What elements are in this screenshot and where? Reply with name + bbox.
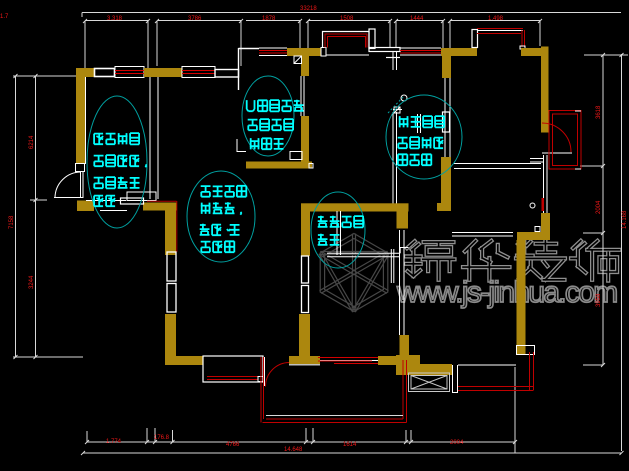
svg-text:3786: 3786 bbox=[188, 16, 202, 22]
svg-text:33218: 33218 bbox=[300, 6, 317, 12]
svg-text:1614: 1614 bbox=[343, 442, 357, 448]
svg-text:3244: 3244 bbox=[29, 275, 35, 289]
svg-text:7158: 7158 bbox=[9, 215, 15, 229]
svg-text:3.318: 3.318 bbox=[107, 16, 123, 22]
svg-text:6214: 6214 bbox=[29, 135, 35, 149]
svg-text:176.8: 176.8 bbox=[154, 435, 170, 441]
svg-text:1444: 1444 bbox=[410, 16, 424, 22]
svg-text:1.774: 1.774 bbox=[106, 439, 122, 445]
svg-text:4766: 4766 bbox=[226, 442, 240, 448]
svg-text:2004: 2004 bbox=[596, 200, 602, 214]
svg-text:1508: 1508 bbox=[340, 16, 354, 22]
svg-text:2004: 2004 bbox=[450, 440, 464, 446]
svg-text:1878: 1878 bbox=[262, 16, 276, 22]
svg-text:14.168: 14.168 bbox=[622, 210, 628, 229]
svg-text:14.648: 14.648 bbox=[284, 447, 303, 453]
svg-text:www.js-jinhua.com: www.js-jinhua.com bbox=[396, 276, 617, 309]
svg-text:3958: 3958 bbox=[596, 293, 602, 307]
svg-text:3618: 3618 bbox=[596, 105, 602, 119]
svg-text:1.498: 1.498 bbox=[488, 16, 504, 22]
svg-text:1.7: 1.7 bbox=[0, 14, 9, 20]
